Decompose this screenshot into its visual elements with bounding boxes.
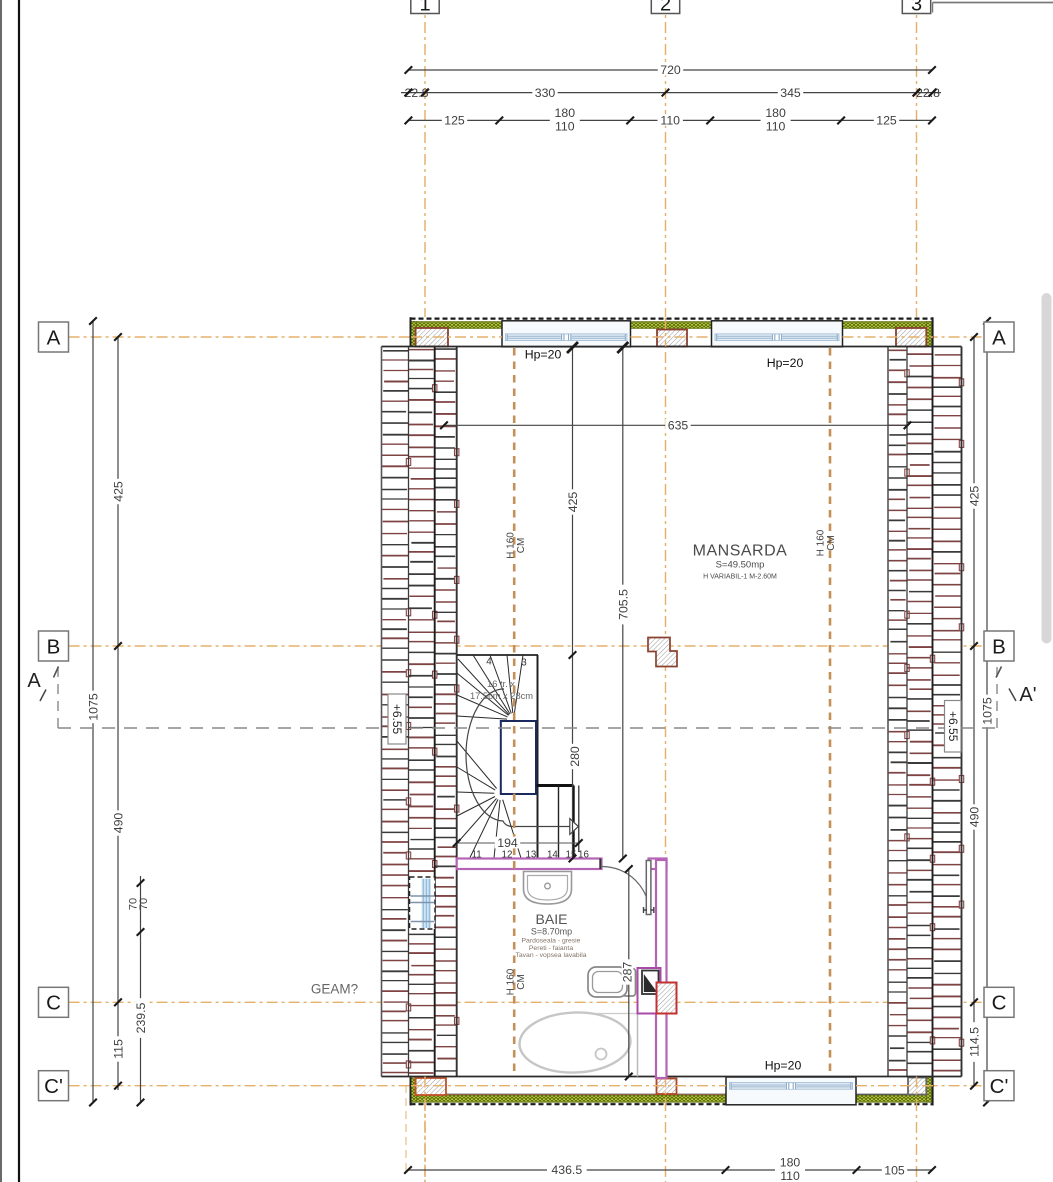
svg-text:110: 110 — [780, 1169, 800, 1182]
svg-text:17.5cm x 28cm: 17.5cm x 28cm — [470, 691, 533, 701]
svg-text:180: 180 — [555, 106, 576, 120]
svg-text:A: A — [47, 326, 61, 349]
svg-text:720: 720 — [660, 63, 681, 77]
svg-text:CM: CM — [826, 535, 837, 551]
svg-text:C': C' — [44, 1075, 63, 1098]
svg-text:180: 180 — [780, 1156, 801, 1170]
svg-text:C: C — [992, 992, 1007, 1015]
svg-text:490: 490 — [112, 813, 126, 834]
svg-text:A: A — [992, 326, 1006, 349]
svg-text:114.5: 114.5 — [968, 1027, 982, 1057]
svg-text:B: B — [992, 635, 1006, 658]
svg-text:280: 280 — [568, 746, 582, 767]
svg-text:287: 287 — [621, 962, 635, 983]
svg-text:H 160: H 160 — [506, 532, 517, 559]
svg-text:Hp=20: Hp=20 — [767, 356, 804, 370]
svg-text:115: 115 — [112, 1039, 126, 1059]
svg-text:3: 3 — [521, 658, 527, 669]
svg-text:C: C — [46, 992, 61, 1015]
svg-text:22.8: 22.8 — [916, 86, 940, 100]
svg-text:Pardoseala - gresie: Pardoseala - gresie — [522, 938, 581, 945]
svg-text:239.5: 239.5 — [134, 1002, 148, 1033]
svg-text:CM: CM — [516, 538, 527, 554]
svg-text:110: 110 — [766, 120, 786, 134]
svg-text:180: 180 — [765, 106, 786, 120]
svg-text:2: 2 — [660, 0, 671, 16]
svg-text:Hp=20: Hp=20 — [525, 348, 562, 362]
svg-text:330: 330 — [535, 86, 556, 100]
svg-text:1075: 1075 — [87, 693, 101, 721]
svg-text:S=8.70mp: S=8.70mp — [531, 927, 572, 937]
svg-text:125: 125 — [444, 114, 465, 128]
svg-text:H 160: H 160 — [506, 968, 517, 995]
svg-text:CM: CM — [516, 974, 527, 990]
svg-text:705.5: 705.5 — [617, 589, 631, 620]
svg-text:GEAM?: GEAM? — [311, 982, 358, 997]
svg-text:490: 490 — [968, 807, 982, 828]
svg-text:A': A' — [1019, 684, 1036, 706]
svg-text:635: 635 — [668, 419, 689, 433]
svg-text:425: 425 — [566, 492, 580, 513]
svg-text:1075: 1075 — [981, 697, 995, 725]
svg-text:MANSARDA: MANSARDA — [693, 543, 788, 560]
svg-text:3: 3 — [911, 0, 922, 16]
svg-text:425: 425 — [968, 486, 982, 507]
svg-text:Pereti - faianta: Pereti - faianta — [529, 945, 573, 952]
svg-text:105: 105 — [884, 1164, 905, 1178]
svg-text:BAIE: BAIE — [536, 911, 568, 927]
svg-text:345: 345 — [780, 86, 801, 100]
svg-text:+6.55: +6.55 — [390, 704, 404, 735]
svg-text:16 tr. x: 16 tr. x — [487, 679, 515, 689]
svg-text:110: 110 — [660, 114, 680, 128]
svg-text:B: B — [47, 635, 61, 658]
svg-text:A: A — [27, 670, 41, 692]
svg-text:110: 110 — [555, 120, 575, 134]
svg-text:436.5: 436.5 — [551, 1163, 582, 1177]
svg-text:C': C' — [990, 1075, 1009, 1098]
svg-text:4: 4 — [486, 657, 492, 668]
svg-text:H VARIABIL-1 M-2.60M: H VARIABIL-1 M-2.60M — [703, 574, 777, 581]
svg-text:125: 125 — [876, 114, 897, 128]
svg-text:Tavan - vopsea lavabila: Tavan - vopsea lavabila — [515, 952, 586, 959]
svg-text:1: 1 — [419, 0, 430, 16]
svg-text:Hp=20: Hp=20 — [765, 1059, 802, 1073]
svg-text:+6.55: +6.55 — [946, 711, 960, 742]
svg-text:70: 70 — [138, 898, 150, 910]
svg-text:194: 194 — [497, 836, 518, 850]
svg-text:425: 425 — [112, 481, 126, 502]
svg-text:H 160: H 160 — [816, 529, 827, 556]
svg-text:S=49.50mp: S=49.50mp — [716, 560, 765, 571]
